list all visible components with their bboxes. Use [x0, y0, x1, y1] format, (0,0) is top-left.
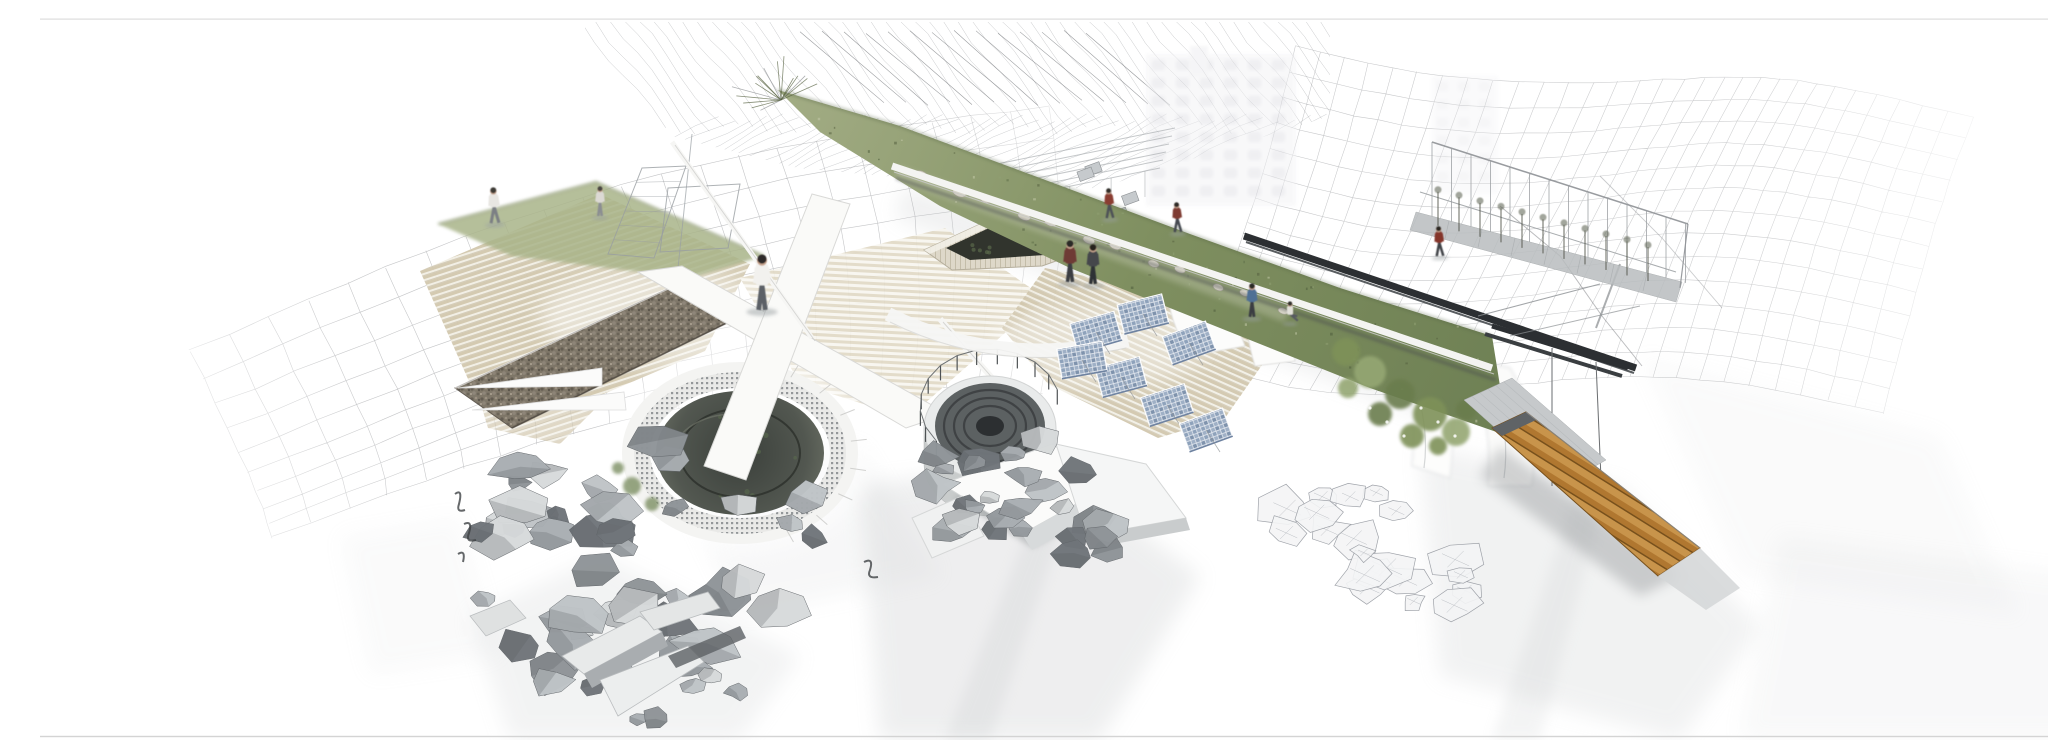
render-canvas: Aerial architectural collage rendering: …	[40, 16, 2048, 740]
architecture-collage-render: Aerial architectural collage rendering: …	[40, 16, 2048, 740]
top-hairline	[40, 19, 2048, 20]
bottom-hairline	[40, 736, 2048, 737]
